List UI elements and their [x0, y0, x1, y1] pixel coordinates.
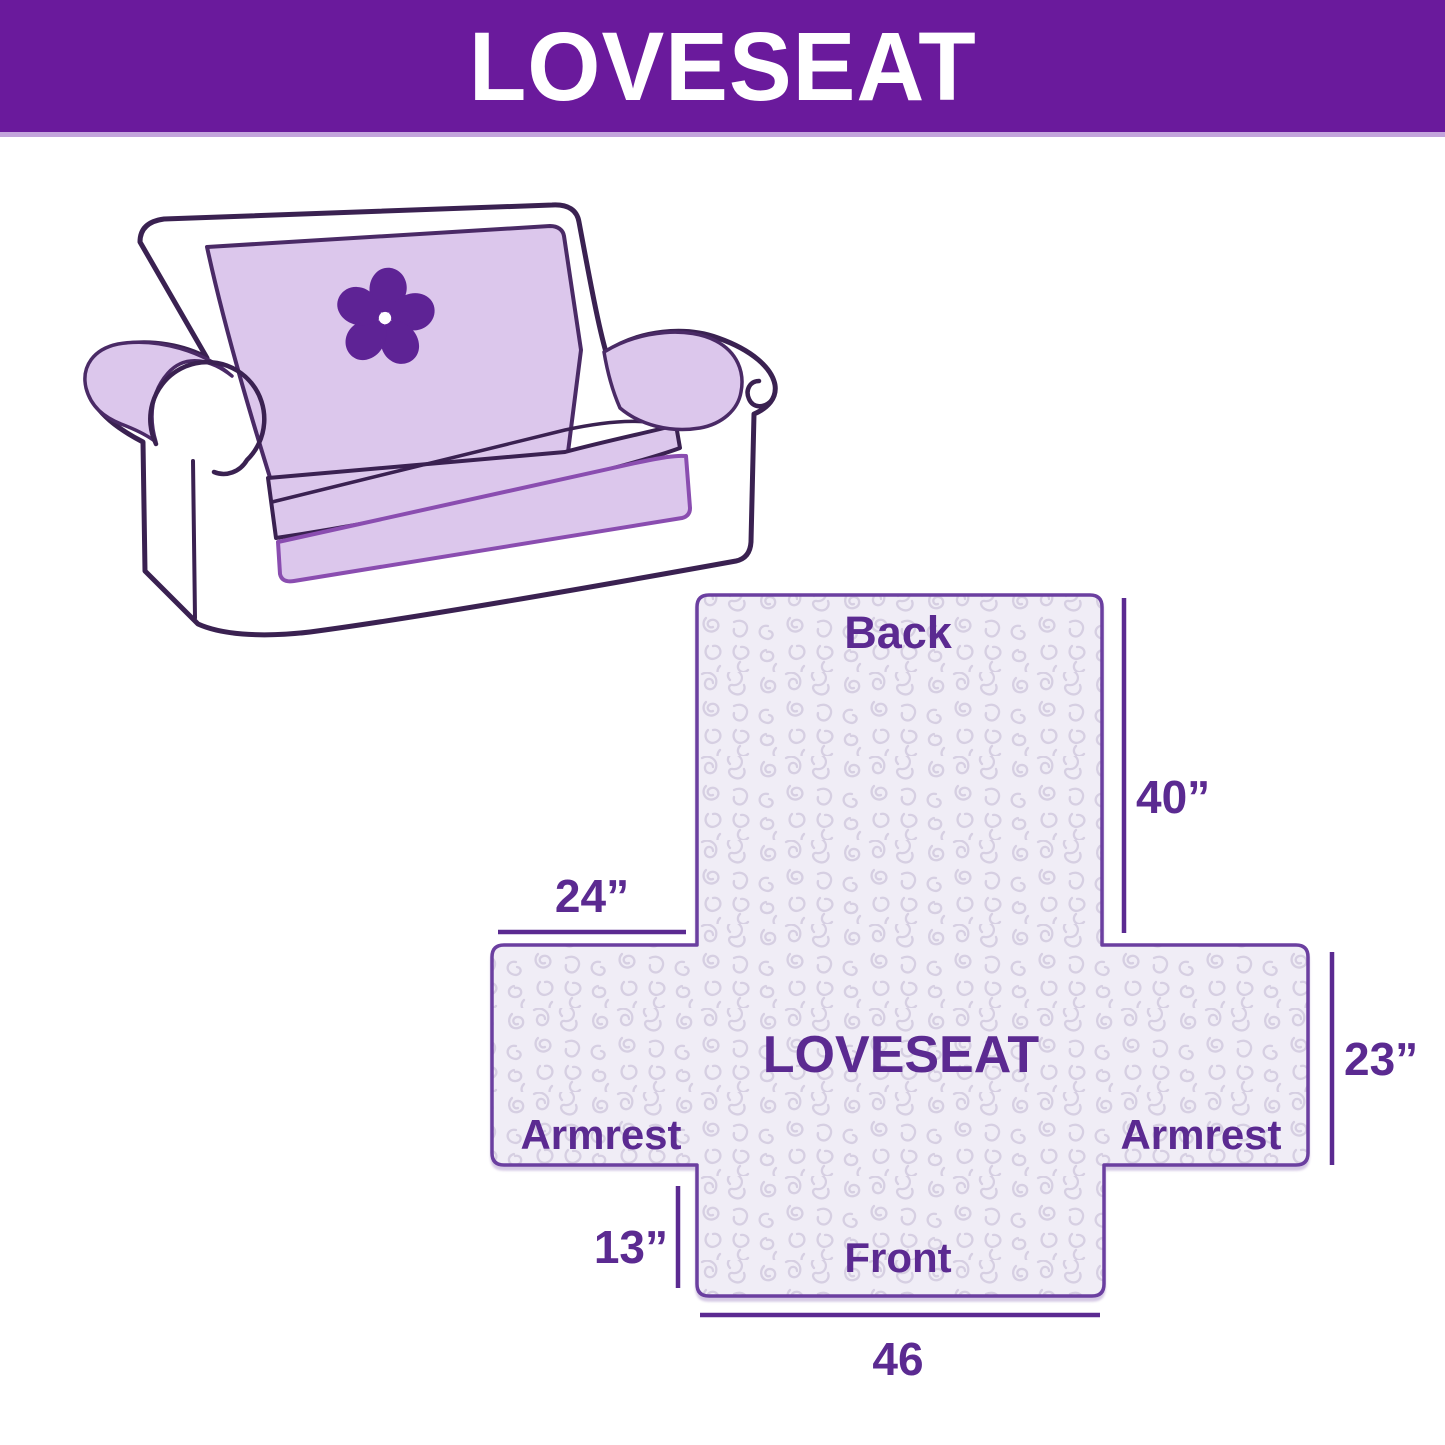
- dimension-front-width: 46: [872, 1333, 923, 1385]
- page-title: LOVESEAT: [469, 18, 977, 115]
- label-center: LOVESEAT: [763, 1026, 1040, 1084]
- label-back: Back: [844, 607, 953, 658]
- dimension-armrest-width: 24”: [555, 870, 629, 922]
- dimension-front-drop: 13”: [594, 1221, 668, 1273]
- dimension-seat-depth: 23”: [1344, 1033, 1418, 1085]
- header-bar: LOVESEAT: [0, 0, 1445, 137]
- label-armrest-left: Armrest: [520, 1111, 681, 1158]
- dimension-back-height: 40”: [1136, 771, 1210, 823]
- label-armrest-right: Armrest: [1120, 1111, 1281, 1158]
- label-front: Front: [844, 1234, 951, 1281]
- cover-outline-shape: [492, 595, 1308, 1296]
- left-arm-front-edge: [193, 461, 195, 618]
- cover-dimensions-diagram: Back LOVESEAT Armrest Armrest Front 40” …: [440, 560, 1445, 1400]
